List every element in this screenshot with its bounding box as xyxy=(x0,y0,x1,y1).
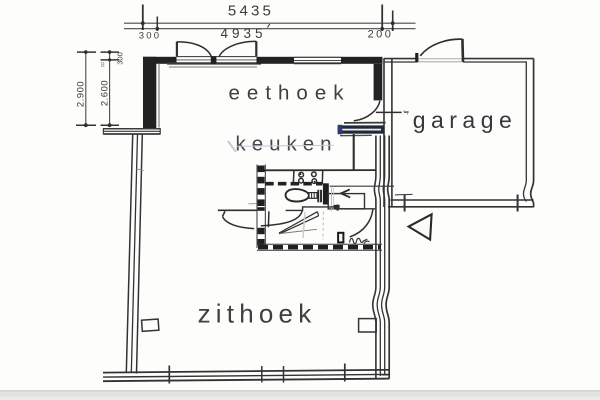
svg-text:8: 8 xyxy=(101,62,105,69)
svg-text:keuken: keuken xyxy=(235,133,337,156)
svg-text:4935: 4935 xyxy=(220,26,266,41)
svg-text:300: 300 xyxy=(116,52,125,65)
svg-text:2.600: 2.600 xyxy=(100,80,111,106)
svg-text:eethoek: eethoek xyxy=(229,82,351,105)
svg-text:2.900: 2.900 xyxy=(76,81,87,107)
svg-text:zithoek: zithoek xyxy=(198,299,317,329)
svg-text:5435: 5435 xyxy=(228,3,274,20)
svg-text:garage: garage xyxy=(413,107,518,133)
svg-text:300: 300 xyxy=(139,31,161,42)
svg-text:200: 200 xyxy=(368,29,394,41)
